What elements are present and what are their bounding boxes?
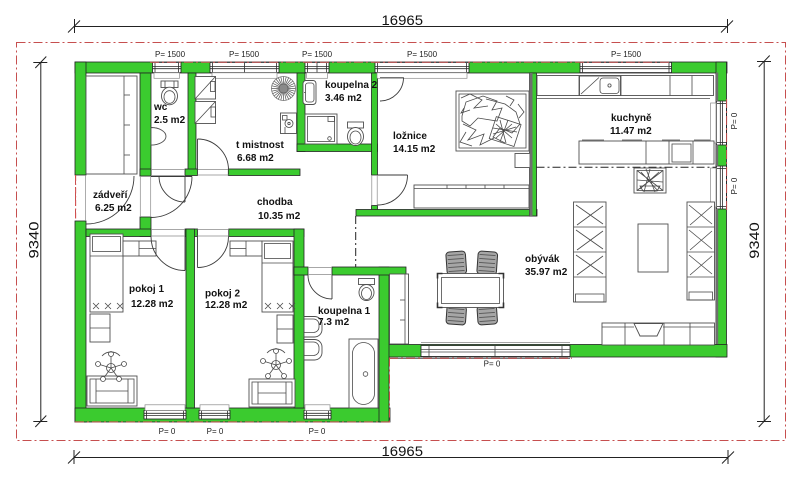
svg-text:pokoj 2: pokoj 2 <box>205 289 240 300</box>
svg-text:P= 1500: P= 1500 <box>407 50 438 59</box>
svg-text:16965: 16965 <box>382 443 424 459</box>
svg-text:16965: 16965 <box>382 12 424 28</box>
svg-text:koupelna 1: koupelna 1 <box>318 306 371 317</box>
svg-text:P= 0: P= 0 <box>309 427 326 436</box>
svg-text:zádveří: zádveří <box>93 190 129 201</box>
svg-text:6.25 m2: 6.25 m2 <box>95 203 132 214</box>
svg-text:P= 0: P= 0 <box>730 112 739 129</box>
svg-text:chodba: chodba <box>257 197 293 208</box>
svg-text:P= 0: P= 0 <box>159 427 176 436</box>
svg-text:35.97 m2: 35.97 m2 <box>525 267 568 278</box>
svg-text:kuchyně: kuchyně <box>611 113 652 124</box>
svg-text:P= 0: P= 0 <box>207 427 224 436</box>
svg-text:14.15 m2: 14.15 m2 <box>393 144 436 155</box>
svg-text:P= 1500: P= 1500 <box>611 50 642 59</box>
svg-text:3.46 m2: 3.46 m2 <box>325 93 362 104</box>
svg-text:P= 0: P= 0 <box>484 360 501 369</box>
svg-text:6.68 m2: 6.68 m2 <box>237 153 274 164</box>
svg-text:9340: 9340 <box>26 221 42 258</box>
svg-text:P= 0: P= 0 <box>730 177 739 194</box>
svg-text:pokoj 1: pokoj 1 <box>129 284 164 295</box>
svg-text:7.3 m2: 7.3 m2 <box>318 317 350 328</box>
svg-text:11.47 m2: 11.47 m2 <box>610 126 652 137</box>
svg-text:12.28 m2: 12.28 m2 <box>205 300 248 311</box>
svg-text:P= 1500: P= 1500 <box>302 50 333 59</box>
svg-text:12.28 m2: 12.28 m2 <box>131 299 174 310</box>
svg-text:t mistnost: t mistnost <box>236 140 284 151</box>
svg-text:obývák: obývák <box>525 254 560 265</box>
svg-text:ložnice: ložnice <box>393 131 427 142</box>
svg-text:wc: wc <box>153 102 168 113</box>
svg-text:10.35 m2: 10.35 m2 <box>258 211 301 222</box>
svg-text:9340: 9340 <box>746 222 762 259</box>
svg-text:P= 1500: P= 1500 <box>155 50 186 59</box>
svg-text:koupelna 2: koupelna 2 <box>325 80 378 91</box>
svg-text:P= 1500: P= 1500 <box>229 50 260 59</box>
svg-text:2.5 m2: 2.5 m2 <box>154 115 186 126</box>
